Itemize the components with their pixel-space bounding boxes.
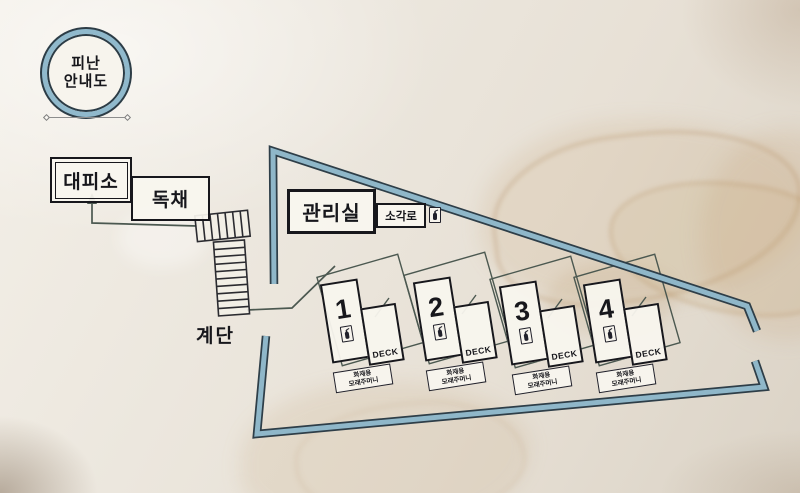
evacuation-map-badge: 피난 안내도	[42, 29, 130, 117]
detached-house-label: 독채	[152, 185, 189, 212]
fire-extinguisher-icon	[429, 207, 441, 223]
deck-label: DECK	[372, 346, 399, 360]
stairs-label: 계단	[196, 321, 235, 348]
cabin-3-number: 3	[513, 297, 532, 326]
scale-line-bar	[48, 117, 126, 118]
cabin-1-number: 1	[334, 295, 353, 324]
cabin-4-number: 4	[597, 295, 616, 324]
fire-extinguisher-icon	[603, 325, 617, 343]
stairs-lower	[213, 240, 249, 316]
fire-extinguisher-icon	[519, 327, 533, 345]
evacuation-sign-photo: 피난 안내도 대피소 독채 관리실 소각로 계단 1 DECK	[0, 0, 800, 493]
badge-title-line1: 피난	[71, 55, 101, 73]
cabin-2-sandbag-tag: 화재용 모래주머니	[426, 361, 487, 391]
fire-extinguisher-glyph	[431, 209, 439, 221]
incinerator-label: 소각로	[385, 208, 417, 224]
diamond-endpoint-icon	[43, 114, 50, 121]
deck-label: DECK	[635, 346, 662, 360]
detached-house-box: 독채	[131, 176, 210, 221]
cabin-2-deck: DECK	[453, 301, 498, 364]
fire-extinguisher-icon	[433, 323, 447, 341]
cabin-3-deck: DECK	[539, 305, 584, 368]
cabin-3-sandbag-tag: 화재용 모래주머니	[512, 365, 573, 395]
deck-label: DECK	[551, 348, 578, 362]
shelter-label: 대피소	[55, 162, 128, 199]
fire-extinguisher-icon	[340, 325, 354, 343]
cabin-1-sandbag-tag: 화재용 모래주머니	[333, 363, 394, 393]
cabin-2-number: 2	[427, 293, 446, 322]
cabin-1-deck: DECK	[360, 303, 405, 366]
cabin-4-deck: DECK	[623, 303, 668, 366]
office-label: 관리실	[302, 197, 360, 226]
scale-line	[44, 113, 130, 123]
diamond-endpoint-icon	[124, 114, 131, 121]
badge-title-line2: 안내도	[64, 73, 108, 91]
shelter-box: 대피소	[50, 157, 132, 203]
deck-label: DECK	[465, 344, 492, 358]
office-box: 관리실	[287, 189, 376, 234]
cabin-4-sandbag-tag: 화재용 모래주머니	[596, 363, 657, 393]
incinerator-box: 소각로	[376, 203, 426, 228]
